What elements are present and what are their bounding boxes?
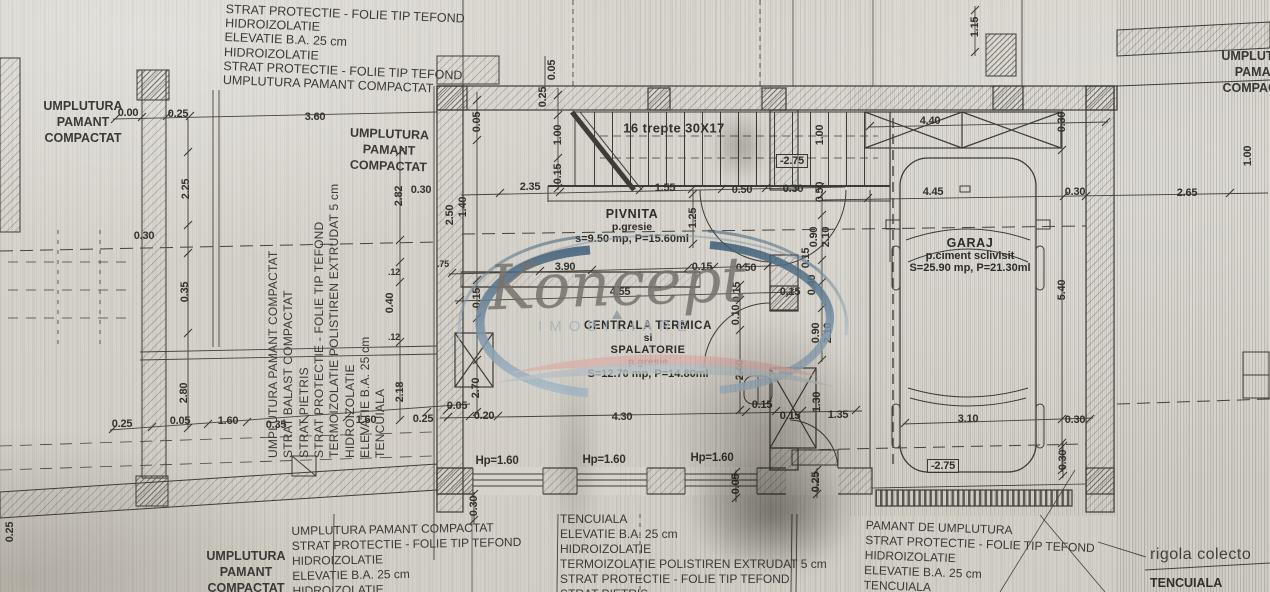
note-line: PAMANT: [38, 114, 128, 130]
dimension-label: 0.05: [730, 474, 742, 495]
dimension-label: 1.30: [811, 392, 823, 413]
note-line-rotated: TERMOIZOLATIE POLISTIREN EXTRUDAT 5 cm: [327, 184, 341, 458]
dimension-label: 0.15: [552, 164, 564, 185]
note-line-rotated: STRAT PROTECTIE - FOLIE TIP TEFOND: [312, 222, 326, 458]
room-label-centrala: CENTRALA TERMICA si SPALATORIE p.gresie …: [584, 320, 712, 380]
dimension-label: 5.40: [1056, 280, 1068, 301]
dimension-label: 0.15: [471, 288, 483, 309]
dimension-label: 0.15: [780, 410, 801, 422]
dimension-label: 0.00: [118, 107, 139, 119]
dimension-label: 0.25: [4, 522, 16, 543]
dimension-label: 1.25: [687, 208, 699, 229]
dimension-label: 0.05: [546, 60, 558, 81]
dimension-label: 0.30: [1057, 450, 1069, 471]
dimension-label: 0.20: [474, 410, 495, 422]
dimension-label: 0.05: [471, 112, 483, 133]
dimension-label: 0.30: [134, 230, 155, 242]
dimension-label: 0.50: [732, 184, 753, 196]
dimension-label: 3.10: [958, 413, 979, 425]
dimension-label: 3.90: [555, 261, 576, 273]
dimension-label: 2.82: [393, 186, 405, 207]
note-line: UMPLUTURA: [344, 124, 435, 143]
dimension-label: 0.90: [808, 227, 820, 248]
dimension-label: 0.30: [1065, 186, 1086, 198]
dimension-label: 1.60: [218, 415, 239, 427]
dimension-label: 1.00: [552, 125, 564, 146]
note-line: UMPLUTURA: [1206, 48, 1270, 64]
dimension-label: 0.10: [730, 305, 742, 326]
dimension-label: 4.40: [920, 115, 941, 127]
rigola-label: rigola colecto: [1150, 546, 1251, 564]
note-line: PAMANT: [196, 564, 296, 580]
note-line: TENCUIALA: [560, 512, 827, 527]
level-marker: -2.75: [776, 154, 808, 168]
dimension-label: 0.15: [752, 399, 773, 411]
note-bottom-left: UMPLUTURA PAMANT COMPACTATSTRAT PROTECTI…: [291, 520, 522, 592]
fill-label-mid: UMPLUTURAPAMANTCOMPACTAT: [343, 124, 435, 175]
dimension-label: 0.15: [692, 261, 713, 273]
dimension-label: 0.50: [736, 262, 757, 274]
dimension-label: 1.15: [969, 17, 981, 38]
dimension-label: 2.10: [820, 227, 832, 248]
note-line: TERMOIZOLATIE POLISTIREN EXTRUDAT 5 cm: [560, 557, 827, 572]
fill-label-bottom-left: UMPLUTURAPAMANTCOMPACTAT: [196, 548, 296, 592]
dimension-label: 0.30: [468, 496, 480, 517]
dimension-label: 0.50: [814, 182, 826, 203]
dimension-label: 0.30: [1065, 414, 1086, 426]
dimension-label: 0.25: [810, 472, 822, 493]
dimension-label: 2.65: [1177, 187, 1198, 199]
tencuiala-right-label: TENCUIALA: [1150, 576, 1222, 590]
note-line: COMPACTAT: [38, 130, 128, 146]
note-line: COMPACTAT: [1206, 80, 1270, 96]
dimension-label: 2.40: [734, 360, 746, 381]
dimension-label: 1.55: [655, 182, 676, 194]
dimension-label: 2.70: [470, 378, 482, 399]
dimension-label: 2.10: [822, 323, 834, 344]
dimension-label: 2.80: [178, 383, 190, 404]
dimension-label: 1.40: [457, 197, 469, 218]
dimension-label: .12: [388, 267, 400, 277]
note-line-rotated: STRAT BALAST COMPACTAT: [281, 290, 295, 458]
dimension-label: 0.05: [447, 400, 468, 412]
dimension-label: Hp=1.60: [475, 455, 518, 467]
dimension-label: 0.25: [537, 87, 549, 108]
dimension-label: 0.35: [266, 419, 287, 431]
dimension-label: 0.25: [413, 413, 434, 425]
dimension-label: 0.15: [731, 282, 743, 303]
stairs-label: 16 trepte 30X17: [623, 121, 724, 136]
dimension-label: 1.60: [356, 414, 377, 426]
note-line: STRAT PIETRIS: [560, 587, 827, 592]
note-line-rotated: ELEVATIE B.A. 25 cm: [358, 337, 372, 458]
note-line-rotated: HIDROIZOLATIE: [343, 364, 357, 458]
dimension-label: 2.25: [180, 179, 192, 200]
dimension-label: Hp=1.60: [690, 452, 733, 464]
level-marker: -2.75: [927, 459, 959, 473]
note-line: UMPLUTURA: [196, 548, 296, 564]
note-top-left: STRAT PROTECTIE - FOLIE TIP TEFONDHIDROI…: [223, 2, 465, 97]
fill-label-left: UMPLUTURAPAMANTCOMPACTAT: [38, 98, 128, 146]
dimension-label: 3.60: [305, 111, 326, 123]
dimension-label: 1.35: [828, 409, 849, 421]
dimension-label: .12: [388, 332, 400, 342]
dimension-label: 4.30: [612, 411, 633, 423]
dimension-label: 1.00: [1242, 146, 1254, 167]
note-line: COMPACTAT: [343, 156, 434, 175]
dimension-label: 0.30: [783, 183, 804, 195]
blueprint-photo: STRAT PROTECTIE - FOLIE TIP TEFONDHIDROI…: [0, 0, 1270, 592]
note-bottom-center: TENCUIALAELEVATIE B.A. 25 cmHIDROIZOLATI…: [560, 512, 827, 592]
dimension-label: 0.25: [112, 418, 133, 430]
note-line: ELEVATIE B.A. 25 cm: [560, 527, 827, 542]
dimension-label: 0.40: [806, 275, 818, 296]
room-label-pivnita: PIVNITA p.gresie s=9.50 mp, P=15.60ml: [575, 207, 689, 245]
dimension-label: 0.05: [170, 415, 191, 427]
dimension-label: 0.90: [810, 323, 822, 344]
dimension-label: 0.30: [1056, 112, 1068, 133]
dimension-label: Hp=1.60: [582, 454, 625, 466]
note-line: HIDROIZOLATIE: [560, 542, 827, 557]
dimension-label: 1.00: [814, 125, 826, 146]
note-bottom-right: PAMANT DE UMPLUTURASTRAT PROTECTIE - FOL…: [863, 518, 1095, 592]
fill-label-top-right: UMPLUTURAPAMANTCOMPACTAT: [1206, 48, 1270, 96]
note-line-rotated: STRAT PIETRIS: [297, 367, 311, 458]
dimension-label: 0.25: [168, 108, 189, 120]
dimension-label: 4.55: [610, 286, 631, 298]
note-line: STRAT PROTECTIE - FOLIE TIP TEFOND: [560, 572, 827, 587]
note-line: COMPACTAT: [196, 580, 296, 592]
dimension-label: 2.18: [394, 382, 406, 403]
dimension-label: .75: [437, 259, 449, 269]
note-line: UMPLUTURA: [38, 98, 128, 114]
room-label-garaj: GARAJ p.ciment sclivisit S=25.90 mp, P=2…: [909, 236, 1030, 274]
dimension-label: 0.35: [179, 282, 191, 303]
dimension-label: 0.15: [780, 286, 801, 298]
note-line: PAMANT: [1206, 64, 1270, 80]
dimension-label: 0.30: [411, 184, 432, 196]
dimension-label: 2.35: [520, 181, 541, 193]
dimension-label: 0.40: [384, 293, 396, 314]
dimension-label: 2.50: [444, 205, 456, 226]
dimension-label: 0.15: [800, 248, 812, 269]
dimension-label: 4.45: [923, 186, 944, 198]
